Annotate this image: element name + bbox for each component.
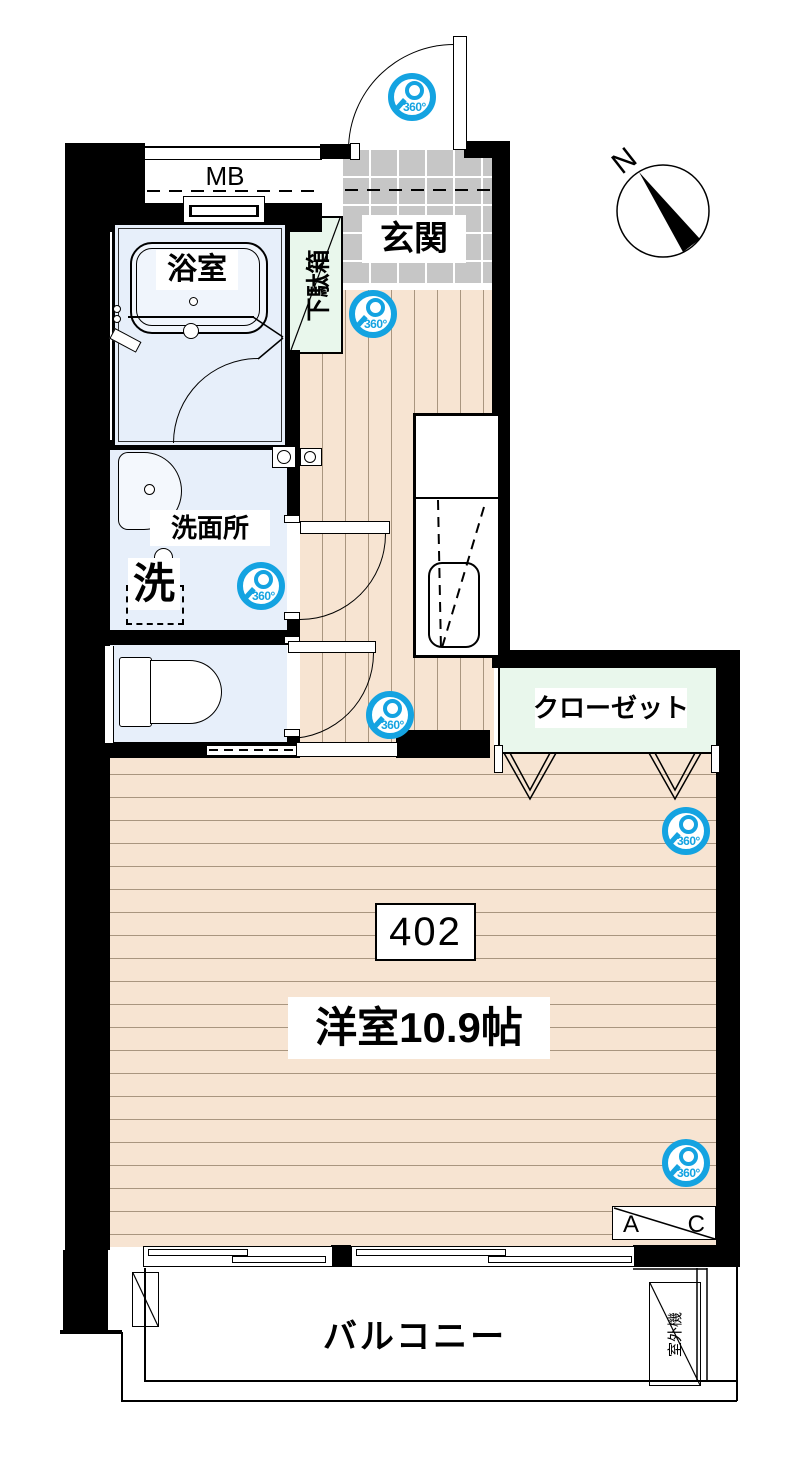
washroom-door-leaf[interactable] (300, 521, 390, 534)
wall-right-of-sliding-door (396, 730, 490, 758)
entrance-step-dashed-line (345, 189, 492, 191)
balcony-label: バルコニー (290, 1316, 540, 1358)
balcony-window-right[interactable] (351, 1246, 635, 1267)
outdoor-unit: 室外機 (649, 1282, 701, 1386)
bath-faucet-knob (113, 315, 121, 323)
wall-hall-left-upper (287, 350, 300, 516)
closet-label: クローゼット (535, 688, 687, 728)
camera-360-label: 360° (403, 100, 426, 114)
camera-360-main-room-lower[interactable]: 360° (662, 1139, 710, 1187)
washroom-label: 洗面所 (150, 510, 270, 546)
bathtub-drain-dot (189, 297, 198, 306)
vanity-drain-dot (144, 484, 155, 495)
camera-360-label: 360° (364, 317, 387, 331)
sliding-door-track (206, 745, 298, 756)
compass-needle (639, 172, 700, 252)
camera-360-main-room-upper[interactable]: 360° (662, 807, 710, 855)
balcony-wall-stub (60, 1330, 122, 1334)
ac-letter-a: A (623, 1211, 639, 1239)
sliding-door-panel[interactable] (296, 742, 398, 757)
entrance-label: 玄関 (362, 215, 466, 263)
kitchen-counter (413, 413, 501, 658)
closet-door-pivot (711, 745, 720, 773)
window-sash (488, 1256, 632, 1263)
magnifier-icon (679, 1147, 698, 1166)
camera-360-washroom[interactable]: 360° (237, 562, 285, 610)
camera-360-label: 360° (252, 589, 275, 603)
toilet-door-leaf[interactable] (288, 641, 376, 653)
main-room-label: 洋室10.9帖 (288, 997, 550, 1059)
toilet-bowl (150, 660, 222, 724)
camera-360-hallway-bottom[interactable]: 360° (366, 691, 414, 739)
meter-box-label: MB (145, 162, 305, 190)
shoe-cabinet-label: 下駄箱 (298, 249, 333, 321)
magnifier-icon (679, 815, 698, 834)
camera-360-label: 360° (677, 834, 700, 848)
floor-plan: MB 下駄箱 玄関 浴室 (0, 0, 800, 1460)
balcony-window-left[interactable] (143, 1246, 333, 1267)
bathroom-window-bar (189, 205, 259, 217)
bath-faucet-knob (113, 305, 121, 313)
toilet-tank (119, 657, 152, 727)
laundry-label: 洗 (128, 558, 180, 610)
entrance-door-frame-post (350, 143, 360, 160)
kitchen-sink (428, 562, 480, 648)
closet-door-pivot (494, 745, 503, 773)
magnifier-icon (366, 298, 385, 317)
laundry-tap-dot (304, 451, 316, 463)
compass-north-label: N (606, 141, 643, 180)
door-frame-post (284, 515, 300, 523)
entrance-door-leaf[interactable] (453, 36, 467, 150)
door-frame-post (284, 729, 300, 737)
shoe-cabinet: 下駄箱 (288, 216, 343, 354)
compass-circle (617, 165, 709, 257)
outdoor-unit-label: 室外機 (664, 1311, 685, 1356)
window-sash (232, 1256, 326, 1263)
camera-360-label: 360° (677, 1166, 700, 1180)
window-sash (356, 1249, 506, 1256)
wall-washroom-toilet (110, 630, 288, 645)
bathroom-label: 浴室 (156, 250, 238, 290)
kitchen-counter-divider (416, 497, 498, 499)
bathroom-floor-edge-line (128, 316, 254, 318)
wall-bottom-left-block (63, 1250, 108, 1330)
door-frame-post (284, 612, 300, 620)
laundry-tap-dot (277, 450, 291, 464)
compass: N (606, 141, 709, 257)
wall-window-mullion (331, 1245, 351, 1267)
sliding-door-track-dashes (209, 749, 295, 751)
meter-box-window (145, 146, 322, 160)
camera-360-entrance-door[interactable]: 360° (388, 73, 436, 121)
meter-box-dashed-line (147, 190, 320, 192)
unit-number-badge: 402 (375, 903, 476, 961)
ac-letter-c: C (688, 1211, 705, 1239)
ac-marker: A C (612, 1206, 716, 1240)
magnifier-icon (254, 570, 273, 589)
bathroom-floor-drain (183, 323, 199, 339)
window-sash (148, 1249, 248, 1256)
camera-360-label: 360° (381, 718, 404, 732)
toilet-window (104, 646, 114, 743)
magnifier-icon (405, 81, 424, 100)
magnifier-icon (383, 699, 402, 718)
balcony-partition (132, 1272, 159, 1327)
wall-bottom-right (633, 1245, 740, 1267)
camera-360-hallway-top[interactable]: 360° (349, 290, 397, 338)
